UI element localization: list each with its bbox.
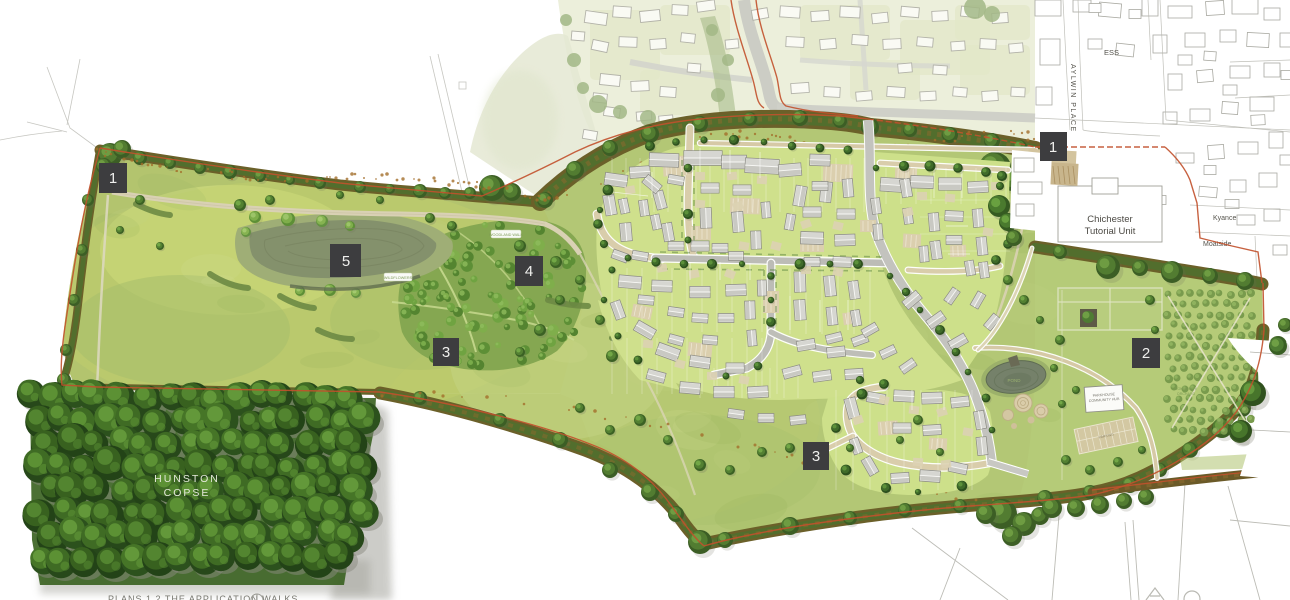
svg-text:3: 3 (812, 448, 820, 465)
svg-text:COPSE: COPSE (164, 487, 211, 499)
svg-text:WOODLAND WALK: WOODLAND WALK (489, 233, 524, 237)
svg-text:HUNSTON: HUNSTON (154, 473, 220, 485)
svg-text:1: 1 (109, 170, 117, 187)
svg-text:1: 1 (1049, 139, 1057, 156)
svg-text:Chichester: Chichester (1087, 214, 1132, 225)
svg-text:ORCHARD: ORCHARD (1177, 392, 1196, 396)
svg-text:4: 4 (525, 263, 533, 280)
svg-text:WILDFLOWERS: WILDFLOWERS (384, 276, 413, 280)
svg-text:PLANS 1.2 THE APPLICATION WALK: PLANS 1.2 THE APPLICATION WALKS (108, 594, 298, 600)
svg-text:COMMUNITY: COMMUNITY (1175, 387, 1198, 391)
svg-text:POND: POND (1007, 378, 1021, 383)
svg-text:AYLWIN PLACE: AYLWIN PLACE (1069, 64, 1076, 133)
svg-text:5: 5 (342, 253, 350, 270)
svg-text:ESS: ESS (1104, 48, 1119, 57)
svg-text:2: 2 (1142, 345, 1150, 362)
svg-text:Kyance: Kyance (1213, 215, 1236, 222)
svg-text:Tutorial Unit: Tutorial Unit (1085, 226, 1136, 237)
svg-text:3: 3 (442, 344, 450, 361)
